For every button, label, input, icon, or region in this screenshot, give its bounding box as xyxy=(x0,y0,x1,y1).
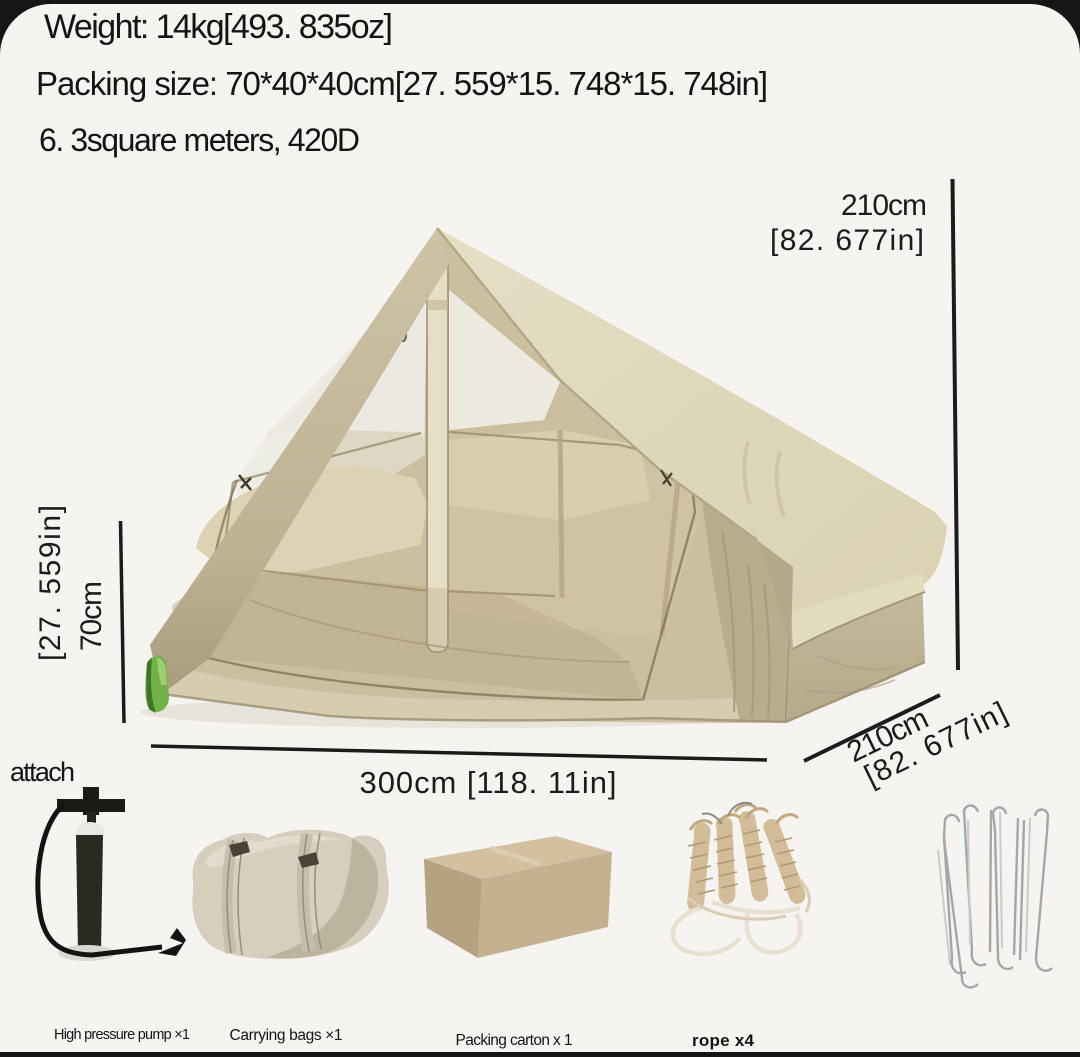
svg-text:300cm [118. 11in]: 300cm [118. 11in] xyxy=(360,765,617,800)
svg-text:rope x4: rope x4 xyxy=(692,1031,755,1050)
svg-text:210cm: 210cm xyxy=(841,189,927,222)
svg-text:Weight: 14kg[493. 835oz]: Weight: 14kg[493. 835oz] xyxy=(44,8,393,46)
svg-text:[27. 559in]: [27. 559in] xyxy=(34,505,67,661)
svg-text:Carrying bags ×1: Carrying bags ×1 xyxy=(230,1027,343,1044)
svg-text:High pressure pump ×1: High pressure pump ×1 xyxy=(54,1027,190,1043)
svg-text:[82. 677in]: [82. 677in] xyxy=(770,224,924,257)
svg-text:6. 3square meters, 420D: 6. 3square meters, 420D xyxy=(39,122,360,158)
svg-text:70cm: 70cm xyxy=(75,581,108,651)
svg-text:Packing carton x 1: Packing carton x 1 xyxy=(456,1032,573,1049)
svg-text:Packing size: 70*40*40cm[27. 5: Packing size: 70*40*40cm[27. 559*15. 748… xyxy=(36,65,768,102)
svg-text:attach: attach xyxy=(10,757,75,787)
